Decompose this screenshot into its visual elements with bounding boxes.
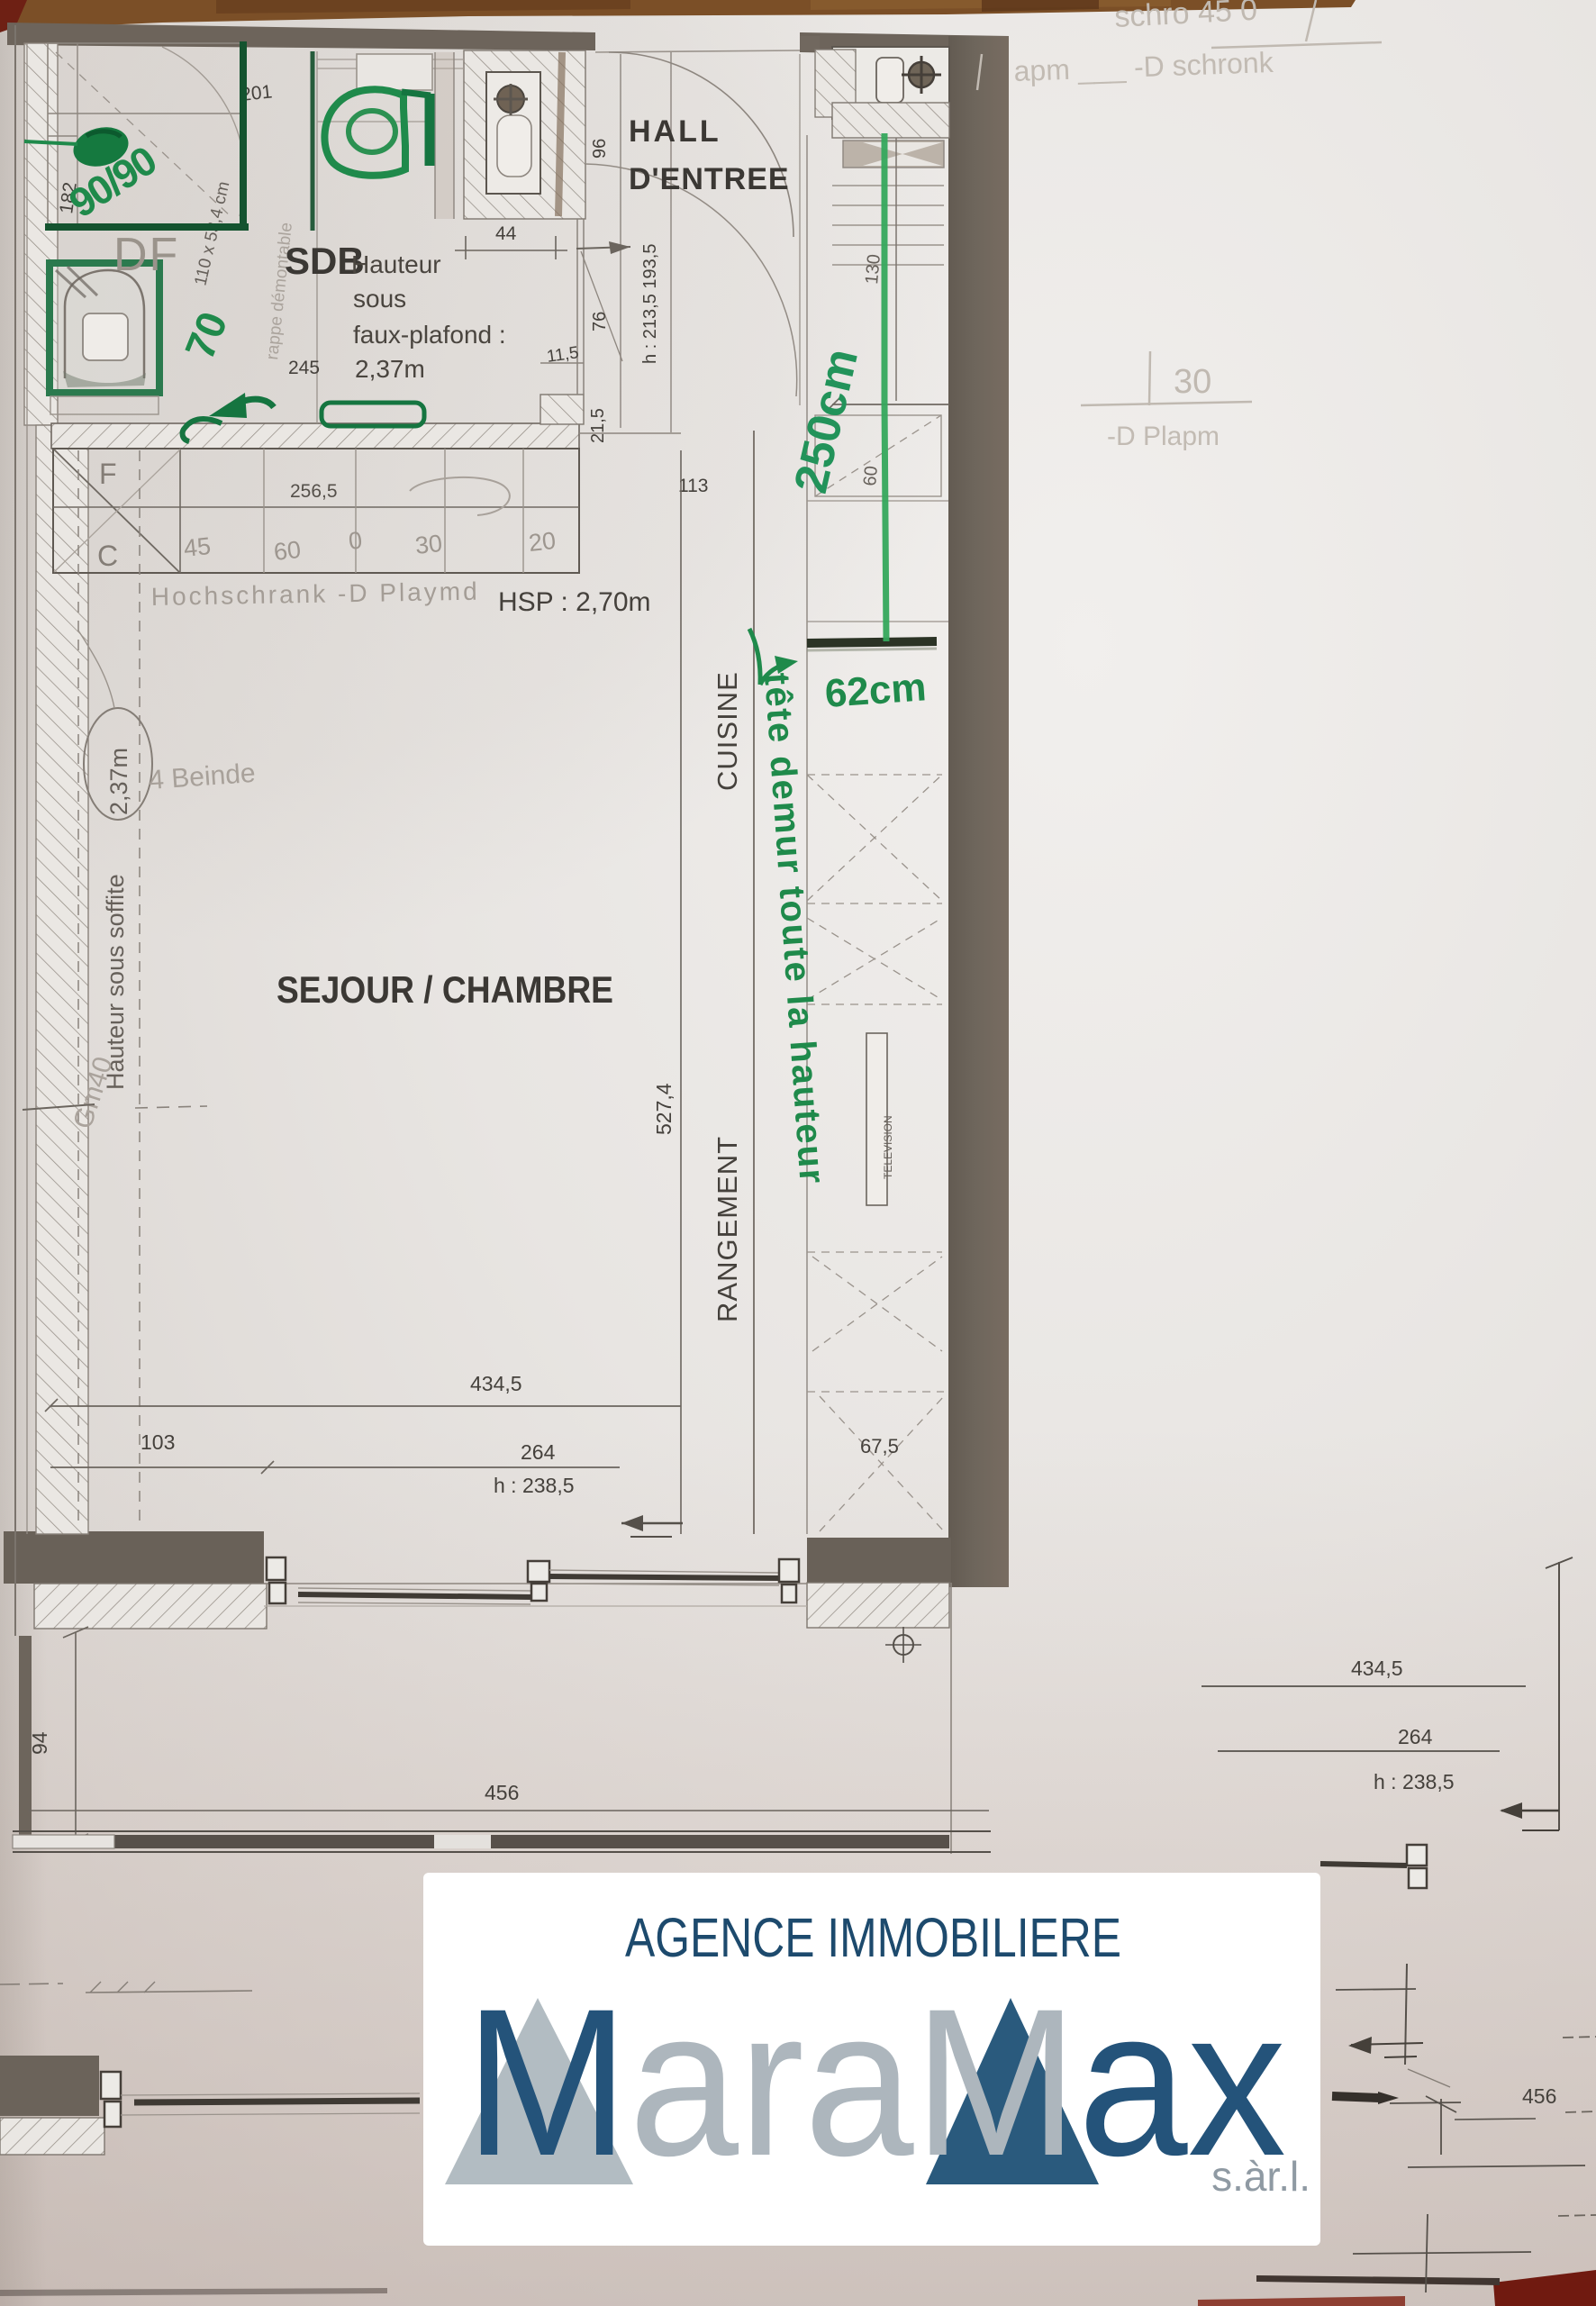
svg-text:113: 113: [678, 476, 708, 496]
svg-text:96: 96: [590, 139, 610, 159]
svg-text:TELEVISION: TELEVISION: [882, 1115, 894, 1179]
svg-text:DF: DF: [113, 229, 179, 281]
svg-text:faux-plafond :: faux-plafond :: [353, 321, 506, 349]
svg-text:HALL: HALL: [629, 114, 721, 149]
svg-text:2,37m: 2,37m: [105, 748, 132, 815]
svg-text:44: 44: [495, 223, 517, 244]
svg-text:C: C: [97, 540, 118, 572]
svg-text:HSP : 2,70m: HSP : 2,70m: [498, 587, 651, 617]
svg-text:h : 213,5 193,5: h : 213,5 193,5: [640, 244, 660, 364]
svg-text:60: 60: [860, 465, 882, 486]
svg-text:62cm: 62cm: [823, 665, 928, 716]
svg-text:256,5: 256,5: [290, 481, 338, 502]
svg-text:s.àr.l.: s.àr.l.: [1211, 2153, 1310, 2200]
svg-text:264: 264: [521, 1440, 556, 1464]
svg-text:130: 130: [862, 253, 884, 285]
svg-text:Hauteur sous soffite: Hauteur sous soffite: [102, 874, 129, 1090]
svg-text:20: 20: [527, 527, 557, 557]
svg-text:264: 264: [1398, 1725, 1433, 1748]
svg-text:MaraMax: MaraMax: [465, 1966, 1286, 2200]
svg-text:30: 30: [1174, 363, 1211, 401]
svg-text:245: 245: [288, 358, 320, 378]
svg-text:Hauteur: Hauteur: [351, 250, 441, 278]
svg-text:434,5: 434,5: [470, 1372, 522, 1395]
svg-text:60: 60: [272, 536, 302, 566]
svg-text:AGENCE IMMOBILIERE: AGENCE IMMOBILIERE: [625, 1907, 1121, 1968]
svg-text:103: 103: [141, 1430, 175, 1454]
svg-text:434,5: 434,5: [1351, 1657, 1403, 1680]
svg-text:SEJOUR / CHAMBRE: SEJOUR / CHAMBRE: [277, 968, 613, 1011]
svg-text:h : 238,5: h : 238,5: [1374, 1770, 1455, 1793]
svg-text:21,5: 21,5: [588, 408, 608, 443]
svg-text:0: 0: [347, 527, 363, 555]
svg-text:sous: sous: [353, 285, 406, 313]
svg-text:Hochschrank -D Playmd: Hochschrank -D Playmd: [151, 577, 480, 611]
svg-text:RANGEMENT: RANGEMENT: [712, 1136, 743, 1322]
svg-text:30: 30: [413, 530, 443, 559]
svg-text:h : 238,5: h : 238,5: [494, 1474, 575, 1497]
svg-text:CUISINE: CUISINE: [712, 671, 743, 791]
svg-text:67,5: 67,5: [860, 1435, 899, 1457]
svg-text:527,4: 527,4: [652, 1083, 676, 1135]
svg-text:45: 45: [182, 532, 212, 562]
svg-text:-D Plapm: -D Plapm: [1107, 422, 1220, 451]
svg-text:2,37m: 2,37m: [355, 355, 425, 383]
svg-text:456: 456: [1522, 2084, 1556, 2108]
svg-text:D'ENTREE: D'ENTREE: [629, 162, 790, 196]
svg-text:76: 76: [590, 312, 610, 331]
svg-text:94: 94: [28, 1731, 51, 1755]
svg-text:456: 456: [485, 1781, 519, 1804]
svg-text:F: F: [99, 458, 117, 490]
